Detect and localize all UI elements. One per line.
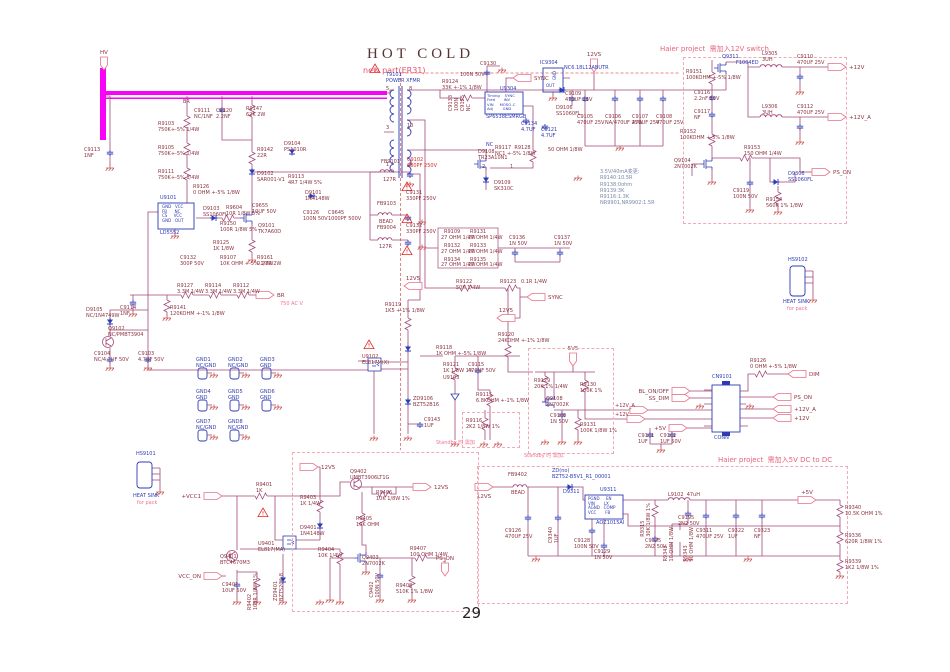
component-label: FB9101 [381, 160, 400, 166]
heatsink-hs9101 [137, 462, 152, 488]
component-label: C9109 470UF 25V [565, 92, 592, 104]
component-label: C9401 10UF 50V [222, 583, 246, 595]
component-label: U9311 [600, 488, 616, 494]
component-label: F1004ED [736, 61, 759, 67]
net-flag-label: HV [100, 50, 108, 56]
component-label: R9113 4R7 1/4W 5% [288, 175, 322, 187]
component-label: C9133 100N [449, 95, 461, 111]
component-label: 750 AC V [280, 302, 303, 308]
component-label: C9323 NF [754, 529, 770, 541]
component-label: R9342 10 OHM 1/8W [664, 527, 676, 562]
component-label: ZD(no) BZT52-B5V1_R1_00001 [552, 469, 611, 481]
component-label: GND7 NC/GND [196, 420, 216, 432]
component-label: R9141 120KOHM +-1% 1/8W [170, 306, 225, 318]
rh-glyph [505, 285, 517, 291]
net-flag-label: SYNC [548, 295, 563, 301]
net-flag-+12v_a [773, 406, 791, 413]
component-label: L9305 3UH [762, 52, 778, 64]
component-label: R9123 0.1R 1/4W [500, 280, 547, 286]
component-label: R9161 0.27R 2W [257, 256, 281, 268]
gn-glyph [370, 436, 378, 441]
component-label: R9127 3.3M 1/4W [177, 284, 204, 296]
component-label: C9110 470UF 25V [797, 55, 824, 67]
component-label: C9322 1UF [728, 529, 744, 541]
component-label: R9112 3.3M 1/4W [233, 284, 260, 296]
component-label: C9655 10UF 50V [252, 204, 276, 216]
net-flag-12v5 [404, 283, 422, 290]
component-label: R9153 150 OHM 1/4W [744, 146, 782, 158]
component-label: 2 [482, 165, 485, 171]
page-number: 29 [462, 604, 481, 622]
component-label: GND4 GND [196, 390, 211, 402]
net-flag-label: 12V5 [499, 308, 514, 314]
hv-bus [100, 68, 387, 140]
component-label: NC [486, 143, 493, 149]
net-flag-label: +VCC1 [181, 494, 201, 500]
gn-glyph [696, 404, 704, 409]
component-label: 8 [409, 87, 412, 93]
component-label: C9117 NF [694, 110, 710, 122]
component-label: C9121 4.7UF [541, 128, 557, 140]
component-label: R9142 22R [257, 148, 273, 160]
component-label: C9119 100N 50V [733, 189, 758, 201]
rv-glyph [405, 318, 411, 330]
dv-glyph [405, 398, 411, 406]
component-label: D9306 SS1060FL [788, 172, 813, 184]
component-label: R9340 10.5K OHM 1% [845, 506, 883, 518]
gn-glyph [233, 600, 241, 605]
change-note-line: NR9901,NR9902:1.5R [600, 200, 655, 206]
component-label: R9111 750K+-5% 1/4W [158, 170, 199, 182]
net-flag-ps_on [773, 394, 791, 401]
component-label: C9105 470UF 25V [577, 115, 604, 127]
component-label: R9114 3.3M 1/4W [205, 284, 232, 296]
cv-glyph [107, 150, 113, 156]
component-label: Q9102 NC/PMBT3904 [108, 327, 143, 339]
component-label: BR [183, 100, 190, 106]
net-flag [627, 416, 645, 423]
component-label: R9130 100K 1% [580, 383, 602, 395]
net-flag-label: 12VS [587, 52, 602, 58]
component-label: C9141 1UF [638, 434, 654, 446]
component-label: R9404 10K 1/4W [318, 548, 342, 560]
net-flag-vcc_on [204, 573, 222, 580]
component-label: R9125 1K 1/8W [213, 241, 234, 253]
be-glyph [378, 213, 392, 215]
component-label: GND3 GND [260, 358, 275, 370]
component-label: C9132 330PF 250V [406, 224, 436, 236]
component-label: L9306 3UH [762, 105, 778, 117]
component-label: D9105 NC/1N4749W [86, 308, 120, 320]
cv-glyph [417, 422, 423, 428]
component-label: GND [553, 71, 558, 80]
net-flag-bl_on/off [672, 388, 690, 395]
gn-glyph [657, 448, 665, 453]
dv-glyph [483, 176, 489, 184]
net-flag-label: SYNC [534, 76, 549, 82]
change-note: 3.5V/40mA变更:R9140:10.5RR9138:0ohmR9139:3… [600, 169, 655, 207]
gn-glyph [106, 366, 114, 371]
component-label: D9401 1N4148W [300, 526, 325, 538]
component-label: C9126 100N 50V [303, 211, 328, 223]
component-label: R9151 100KOHM +-5% 1/8W [686, 70, 741, 82]
component-label: C9136 1N 50V [509, 236, 527, 248]
component-label: R9152 100KOHM +-5% 1/8W [680, 130, 735, 142]
component-label: R9129 20K 1% 1/4W [534, 379, 568, 391]
annotation-box-title: Haier project 需加入5V DC to DC [718, 455, 832, 465]
cv-glyph [637, 96, 643, 102]
net-flag-label: +12V [849, 65, 865, 71]
component-label: R9119 1K5 +-1% 1/8W [385, 303, 425, 315]
component-label: U9304 [500, 87, 516, 93]
component-label: C9142 1UF 50V [660, 434, 681, 446]
rv-glyph [249, 152, 255, 164]
cv-glyph [405, 240, 411, 246]
net-flag-label: SS_DIM [649, 396, 670, 402]
annotation-box-title: Haier project 需加入12V switch [660, 44, 769, 54]
net-flag-label: BR [277, 293, 285, 299]
cv-glyph [512, 250, 518, 256]
wa-glyph [258, 508, 268, 517]
component-label: FB9004 [377, 226, 396, 232]
component-label: R9403 1K 1/4W [300, 496, 321, 508]
component-label: LD5552 [160, 231, 179, 237]
net-flag-label: VCC_ON [178, 574, 201, 580]
component-label: D9102 SAR001-V1 [257, 172, 285, 184]
component-label: U9401 EL817(MA) [258, 542, 285, 554]
net-flag-sync [513, 75, 531, 82]
component-label: ZD9106 BZT52B16 [413, 397, 439, 409]
tl-glyph [451, 394, 459, 400]
component-label: C9129 1N 50V [594, 550, 612, 562]
component-label: D9311 [563, 490, 580, 496]
component-label: C9108 470UF 25V [656, 115, 683, 127]
net-flag-ss_dim [672, 395, 690, 402]
component-label: GND VCC FB NC CS VCC GND OUT [162, 205, 184, 223]
annotation-box [528, 348, 614, 454]
component-label: R9120 24KOHM +-1% 1/8W [498, 333, 549, 345]
component-label: FB9103 [377, 202, 396, 208]
component-label: OUT [546, 84, 555, 89]
component-label: T9101 POWER XFMR [386, 73, 420, 85]
component-label: R9147 62K 2W [246, 107, 265, 119]
component-label: D9108 TR23A10N1 [478, 150, 508, 162]
component-label: C9115 470NF 50V [468, 363, 496, 375]
heatsink-hs9102 [790, 266, 805, 296]
component-label: PGND EN VIN LX AGND COMP VCC FB [588, 497, 615, 515]
wa-glyph [364, 340, 374, 349]
component-label: U9102 EL817M(X) [362, 355, 389, 367]
component-label: R9402 100R 1/8W 1% [248, 573, 260, 610]
net-flag-label: BL_ON/OFF [638, 389, 669, 395]
cv-glyph [407, 172, 413, 178]
component-label: 1 [510, 165, 513, 171]
component-label: GND1 NC/GND [196, 358, 216, 370]
net-flag-+5v [669, 425, 687, 432]
rv-glyph [249, 240, 255, 252]
component-label: 127R [379, 245, 392, 251]
component-label: 10 [407, 124, 413, 130]
component-label: C9114 1NF [120, 306, 136, 318]
component-label: C9125 NC [461, 95, 473, 111]
component-label: C9311 470UF 25V [696, 529, 723, 541]
component-label: C9130 [480, 62, 496, 68]
component-label: Q9108 2N7002K [546, 397, 569, 409]
net-flag-+vcc1 [204, 493, 222, 500]
component-label: GND6 GND [260, 390, 275, 402]
component-label: C9103 4.7UF 50V [138, 352, 164, 364]
gn-glyph [574, 176, 582, 181]
component-label: R9124 33K +-1% 1/8W [442, 80, 482, 92]
component-label: 100N 50V [460, 73, 485, 79]
component-label: U9101 [160, 196, 176, 202]
component-label: R9116 2K2 1/8W 1% [466, 419, 500, 431]
component-label: IC9304 [540, 61, 558, 67]
component-label: Q9403 2N7002K [362, 556, 385, 568]
be-glyph [378, 238, 392, 240]
component-label: 27 OHM 1/4W [468, 263, 503, 269]
component-label: 27 OHM 1/4W [468, 236, 503, 242]
component-label: Timing SYNC Fred INV VIN MOSO-C Adj GND [487, 94, 515, 111]
component-label: Standby 时 需加. [524, 454, 564, 460]
cv-glyph [660, 96, 666, 102]
component-label: C9143 1UF [424, 418, 440, 430]
gn-glyph [549, 96, 557, 101]
component-label: GND2 NC/GND [228, 358, 248, 370]
annotation-box [477, 466, 848, 604]
component-label: C9134 4.7UF [521, 122, 537, 134]
cv-glyph [612, 96, 618, 102]
component-label: 127R [383, 178, 396, 184]
component-label: C9112 470UF 25V [797, 105, 824, 117]
component-label: Q9101 TK7A60D [258, 224, 281, 236]
component-label: C9116 2.2nF 50V [694, 91, 719, 103]
component-label: C9137 1N 50V [554, 236, 572, 248]
component-label: ZD9401 BZT52C6-8 [274, 573, 286, 601]
component-label: C9120 2.2NF [216, 109, 232, 121]
wa-glyph [402, 246, 412, 255]
component-label: C9402 100N 50V [370, 573, 382, 598]
component-label: CONN [714, 436, 729, 442]
component-label: R9103 750K+-5% 1/4W [158, 122, 199, 134]
component-label: SP6538ESMRGB [486, 115, 526, 121]
component-label: R9115 6.8KOHM +-1% 1/8W [476, 393, 529, 405]
component-label: AOZ1015AI [596, 521, 624, 527]
rv-glyph [505, 345, 511, 357]
component-label: U9103 [443, 376, 459, 382]
component-label: R9126 0 OHM +-5% 1/8W [193, 185, 240, 197]
component-label: R9105 750K+-5% 1/4W [158, 146, 199, 158]
component-label: C9340 1UF [549, 527, 561, 543]
component-label: for pack [137, 501, 157, 507]
component-label: NC6.18L12ABUTR [564, 66, 609, 72]
component-label: C9126 470UF 25V [505, 529, 532, 541]
component-label: 27 OHM 1/4W [468, 250, 503, 256]
component-label: R9343 10 OHM 1/8W [684, 527, 696, 562]
component-label: R9405 10K OHM [356, 517, 379, 529]
gn-glyph [498, 68, 506, 73]
component-label: Q9401 BTC4670M3 [220, 555, 250, 567]
component-label: R9131 100K 1/8W 1% [580, 423, 617, 435]
component-label: +12V_A [615, 404, 635, 410]
component-label: C9645 1000PF 500V [328, 211, 361, 223]
gn-glyph [144, 366, 152, 371]
component-label: Q9402 UMBT3906LT1G [350, 470, 389, 482]
component-label: R9150 100R 1/8W 5% [220, 222, 257, 234]
component-label: +12V [615, 413, 629, 419]
component-label: R9339 1K2 1/8W 1% [845, 560, 879, 572]
component-label: BEAD [511, 491, 525, 497]
component-label: C9113 1NF [84, 148, 100, 160]
component-label: R9126 0 OHM +-5% 1/8W [750, 359, 797, 371]
component-label: R9407 100 OHM 1/4W [410, 547, 448, 559]
component-label: HS9101 [136, 452, 156, 458]
component-label: C9104 NC/4.7UF 50V [94, 352, 129, 364]
page-title: HOT COLD [367, 46, 474, 63]
component-label: D9109 SK310C [494, 181, 514, 193]
component-label: R9154 560K 1% 1/8W [766, 198, 803, 210]
component-label: R9315 30K 1/8W 1% [641, 503, 653, 537]
component-label: D9103 SS1060FL [203, 207, 228, 219]
net-flag-label: PS_ON [794, 395, 812, 401]
component-label: R9401 1K [256, 483, 272, 495]
component-label: L9102 47uH [668, 493, 700, 499]
net-flag-sync [527, 294, 545, 301]
net-flag-label: +12V_A [849, 115, 871, 121]
component-label: R9122 50K 1/4W [456, 280, 480, 292]
net-flag-+12v [773, 415, 791, 422]
cv-glyph [557, 250, 563, 256]
gn-glyph [106, 166, 114, 171]
component-label: FB9402 [508, 473, 527, 479]
component-label: 5 [386, 87, 389, 93]
component-label: 3 [386, 126, 389, 132]
component-label: GND5 GND [228, 390, 243, 402]
dv-glyph [405, 345, 411, 353]
component-label: C9132 300P 50V [180, 256, 204, 268]
gn-glyph [809, 298, 817, 303]
component-label: HEAT SINK [133, 494, 159, 500]
net-flag-12v5 [497, 315, 515, 322]
net-flag-label: +5V [654, 426, 666, 432]
rh-glyph [755, 371, 767, 377]
component-label: 50 OHM 1/8W [548, 148, 583, 154]
component-label: R9406 10K 1/8W 1% [376, 491, 410, 503]
component-label: R9336 620R 1/8W 1% [845, 534, 882, 546]
net-flag-label: +12V_A [794, 407, 816, 413]
component-label: D9104 PS1010R [284, 142, 306, 154]
gn-glyph [404, 436, 412, 441]
component-label: HS9102 [788, 258, 808, 264]
net-flag-label: DIM [809, 372, 820, 378]
component-label: R9408 510K 1% 1/8W [396, 584, 433, 596]
component-label: R9118 1K OHM +-5% 1/8W [436, 346, 486, 358]
schematic-page: HV12VSSYNC+12V+12V_APS_ONBRSYNC12V512V5D… [0, 0, 950, 672]
net-flag-label: +12V [794, 416, 810, 422]
component-label: for pack [787, 307, 807, 313]
net-flag-label: 12V5 [406, 276, 421, 282]
component-label: Q9104 2N7002K [674, 159, 697, 171]
gn-glyph [746, 404, 754, 409]
component-label: GND8 NC/GND [228, 420, 248, 432]
component-label: C9140 1N 50V [550, 414, 568, 426]
component-label: HEAT SINK [783, 300, 809, 306]
component-label: D9101 1N4148W [305, 191, 330, 203]
component-label: CN9101 [712, 375, 732, 381]
net-flag-dim [788, 371, 806, 378]
component-label: C9131 330PF 250V [406, 191, 436, 203]
component-label: C9111 NC/1NF [194, 109, 213, 121]
component-label: Standby 时 需加 [436, 441, 475, 447]
component-label: C9102 680PF 250V [407, 158, 437, 170]
